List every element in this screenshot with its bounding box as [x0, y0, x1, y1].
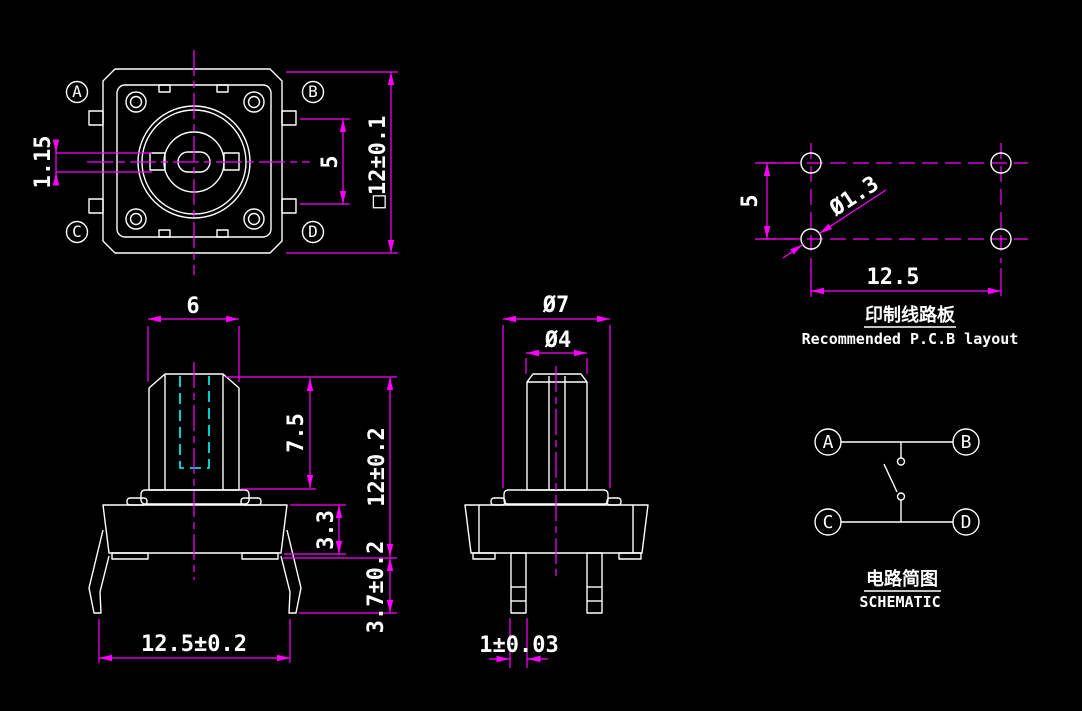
base-tab	[242, 553, 278, 559]
corner-hole	[244, 92, 264, 112]
switch-body	[103, 505, 287, 553]
dim-text: □12±0.1	[366, 116, 391, 209]
dim-text: 12.5±0.2	[141, 632, 247, 657]
right-leg	[281, 530, 301, 613]
dim-base-width: 12.5±0.2	[99, 619, 290, 663]
pcb-title-zh: 印制线路板	[865, 304, 956, 326]
dim-text: 12±0.2	[365, 427, 390, 506]
top-view: A B C D 1.15 5 □12±0.1	[31, 50, 398, 275]
base-tab	[112, 553, 148, 559]
corner-hole	[249, 214, 260, 225]
switch-blade	[884, 464, 897, 492]
dim-text: 5	[738, 194, 763, 207]
contact-point	[898, 493, 905, 500]
cad-drawing: A B C D 1.15 5 □12±0.1	[0, 0, 1082, 711]
dim-body-height: 3.3	[284, 505, 346, 554]
pcb-layout: 5 Ø1.3 12.5 印制线路板 Recommended P.C.B layo…	[738, 143, 1028, 348]
dim-text: 3.3	[314, 510, 339, 550]
corner-hole	[131, 214, 142, 225]
dim-hole-row-spacing: 5	[738, 163, 795, 239]
schematic-title-zh: 电路简图	[866, 568, 938, 590]
dim-text: 7.5	[284, 413, 309, 453]
base-tab	[473, 553, 495, 559]
edge-notch	[159, 85, 170, 92]
stem-outline	[527, 374, 587, 490]
dim-pin-width: 1±0.03	[479, 618, 558, 668]
corner-hole	[126, 92, 146, 112]
side-view: Ø7 Ø4 1±0.03	[465, 293, 648, 668]
terminal-label-c: C	[823, 512, 834, 533]
dim-text: 1±0.03	[479, 633, 558, 658]
edge-notch	[217, 230, 228, 237]
terminal-label-a: A	[823, 432, 834, 453]
edge-notch	[159, 230, 170, 237]
dim-text: 1.15	[31, 136, 56, 189]
terminal-label-a: A	[72, 82, 82, 101]
base-tab	[619, 553, 641, 559]
dim-hole-diameter: Ø1.3	[783, 172, 886, 258]
dim-text: 3.7±0.2	[364, 541, 389, 634]
dim-text: Ø1.3	[825, 172, 884, 223]
terminal-label-d: D	[961, 512, 972, 533]
schematic: A B C D 电路简图 SCHEMATIC	[815, 429, 979, 611]
edge-notch	[217, 85, 228, 92]
body-bump	[607, 498, 621, 505]
contact-point	[898, 458, 905, 465]
dim-text: Ø7	[542, 293, 570, 318]
side-tab	[89, 111, 103, 125]
left-leg	[89, 530, 109, 613]
corner-hole	[244, 209, 264, 229]
pcb-title-en: Recommended P.C.B layout	[802, 330, 1019, 348]
collar	[141, 490, 249, 504]
dim-text: 5	[318, 155, 343, 168]
cad-drawing-canvas: A B C D 1.15 5 □12±0.1	[0, 0, 1082, 711]
corner-hole	[131, 97, 142, 108]
side-tab	[89, 199, 103, 213]
dim-text: 6	[186, 294, 199, 319]
terminal-label-c: C	[72, 222, 82, 241]
terminal-label-b: B	[308, 82, 318, 101]
terminal-label-d: D	[308, 222, 318, 241]
corner-hole	[126, 209, 146, 229]
dim-hole-column-spacing: 12.5	[811, 265, 1001, 296]
dim-text: 12.5	[867, 265, 920, 290]
left-pin	[511, 553, 526, 613]
right-pin	[587, 553, 602, 613]
dim-text: Ø4	[544, 328, 572, 353]
corner-hole	[249, 97, 260, 108]
side-tab	[282, 199, 296, 213]
terminal-label-b: B	[961, 432, 972, 453]
body-bump	[491, 498, 505, 505]
leader-line	[783, 245, 803, 259]
dim-total-height: 12±0.2	[283, 377, 397, 558]
side-tab	[282, 111, 296, 125]
schematic-title-en: SCHEMATIC	[859, 593, 940, 611]
front-view: 6 7.5 12±0.2 3.3 3.7±0.2	[89, 294, 397, 663]
